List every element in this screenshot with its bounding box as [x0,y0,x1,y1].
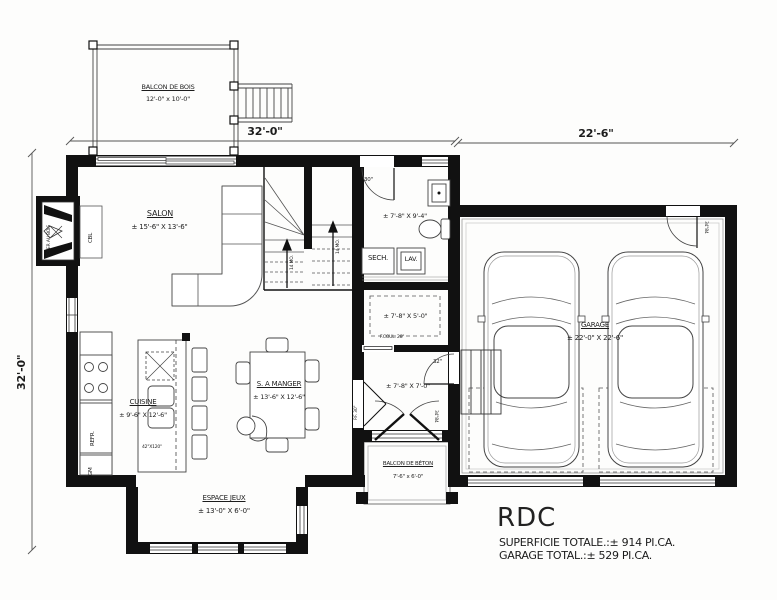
floor-plan: 32'-0" 22'-6" 32'-0" BALCON DE BOIS 12'-… [0,0,777,600]
salon-label: SALON [120,210,200,219]
hall-size: ± 7'-8" X 7'-0" [368,383,448,390]
dim-top-left: 32'-0" [235,126,295,138]
fireplace-label: FOYER AU BOIS [48,225,53,257]
sectional-sofa [172,186,262,306]
salon-size: ± 15'-6" X 13'-6" [112,224,207,232]
bath-door-size: 30" [364,177,373,183]
espace-jeux-size: ± 13'-0" X 6'-0" [182,508,266,516]
cuisine-size: ± 9'-6" X 12'-6" [100,412,186,419]
espace-jeux-label: ESPACE JEUX [180,495,268,503]
fridge-label: REFR. [90,431,96,446]
dining-size: ± 13'-6" X 12'-6" [242,394,316,401]
plan-title: RDC [497,504,556,533]
balcon-bois-label: BALCON DE BOIS [118,84,218,91]
stairs [264,167,352,290]
garage-door-2 [600,477,715,486]
french-door-opening [353,380,363,428]
bath-window [422,157,448,166]
dim-top-right: 22'-6" [566,128,626,140]
concrete-balcony [356,442,458,504]
toilet [419,220,441,238]
dining-label: S. A MANGER [248,381,310,389]
cable-label: CBL [88,233,94,243]
superficie-total: SUPERFICIE TOTALE.:± 914 PI.CA. [499,537,675,549]
walkin-size: ± 7'-8" X 5'-0" [358,313,453,320]
stair-arrow-label-right: 14 MO. [337,239,342,254]
washer-label: LAV. [399,256,423,263]
balcon-beton-size: 7'-6" x 6'-0" [380,474,436,480]
stair-arrow-label-left: 14 MO. [291,255,296,270]
stove [80,355,112,400]
bath-size: ± 7'-8" X 9'-4" [362,213,448,220]
dryer-label: SECH. [362,255,394,263]
cuisine-label: CUISINE [112,399,174,407]
garage-size: ± 22'-0" X 22'-6" [550,335,640,343]
entry-door-size: 34"84 [432,410,437,423]
dim-left: 32'-0" [16,355,28,390]
bath-door-opening [360,156,394,167]
garage-door-1 [468,477,583,486]
garage-total: GARAGE TOTAL.:± 529 PI.CA. [499,550,652,562]
floor-plan-drawing [0,0,777,600]
pantry [80,455,112,475]
hall-garage-opening [449,352,459,384]
balcon-beton-label: BALCON DE BÉTON [372,461,444,467]
balcony-stairs [238,84,292,122]
hall-garage-door-size: 32" [433,359,442,365]
sliding-door-label: F.COUL. 28" [380,336,404,341]
car-right [602,252,709,467]
pantry-label: GM [88,467,94,476]
balcon-bois-size: 12'-0" x 10'-0" [118,96,218,103]
stools [192,348,207,459]
garage-label: GARAGE [563,322,627,330]
playspace-windows [150,544,286,553]
garage-side-door-size: 34"84 [702,221,707,234]
bath-fixtures [362,180,450,280]
garage-side-door-opening [666,206,700,216]
playspace-side-window [297,506,307,534]
car-left [478,252,585,467]
island-size: 42"X120" [142,446,162,451]
french-door-size: P.F. 30" [355,406,360,420]
